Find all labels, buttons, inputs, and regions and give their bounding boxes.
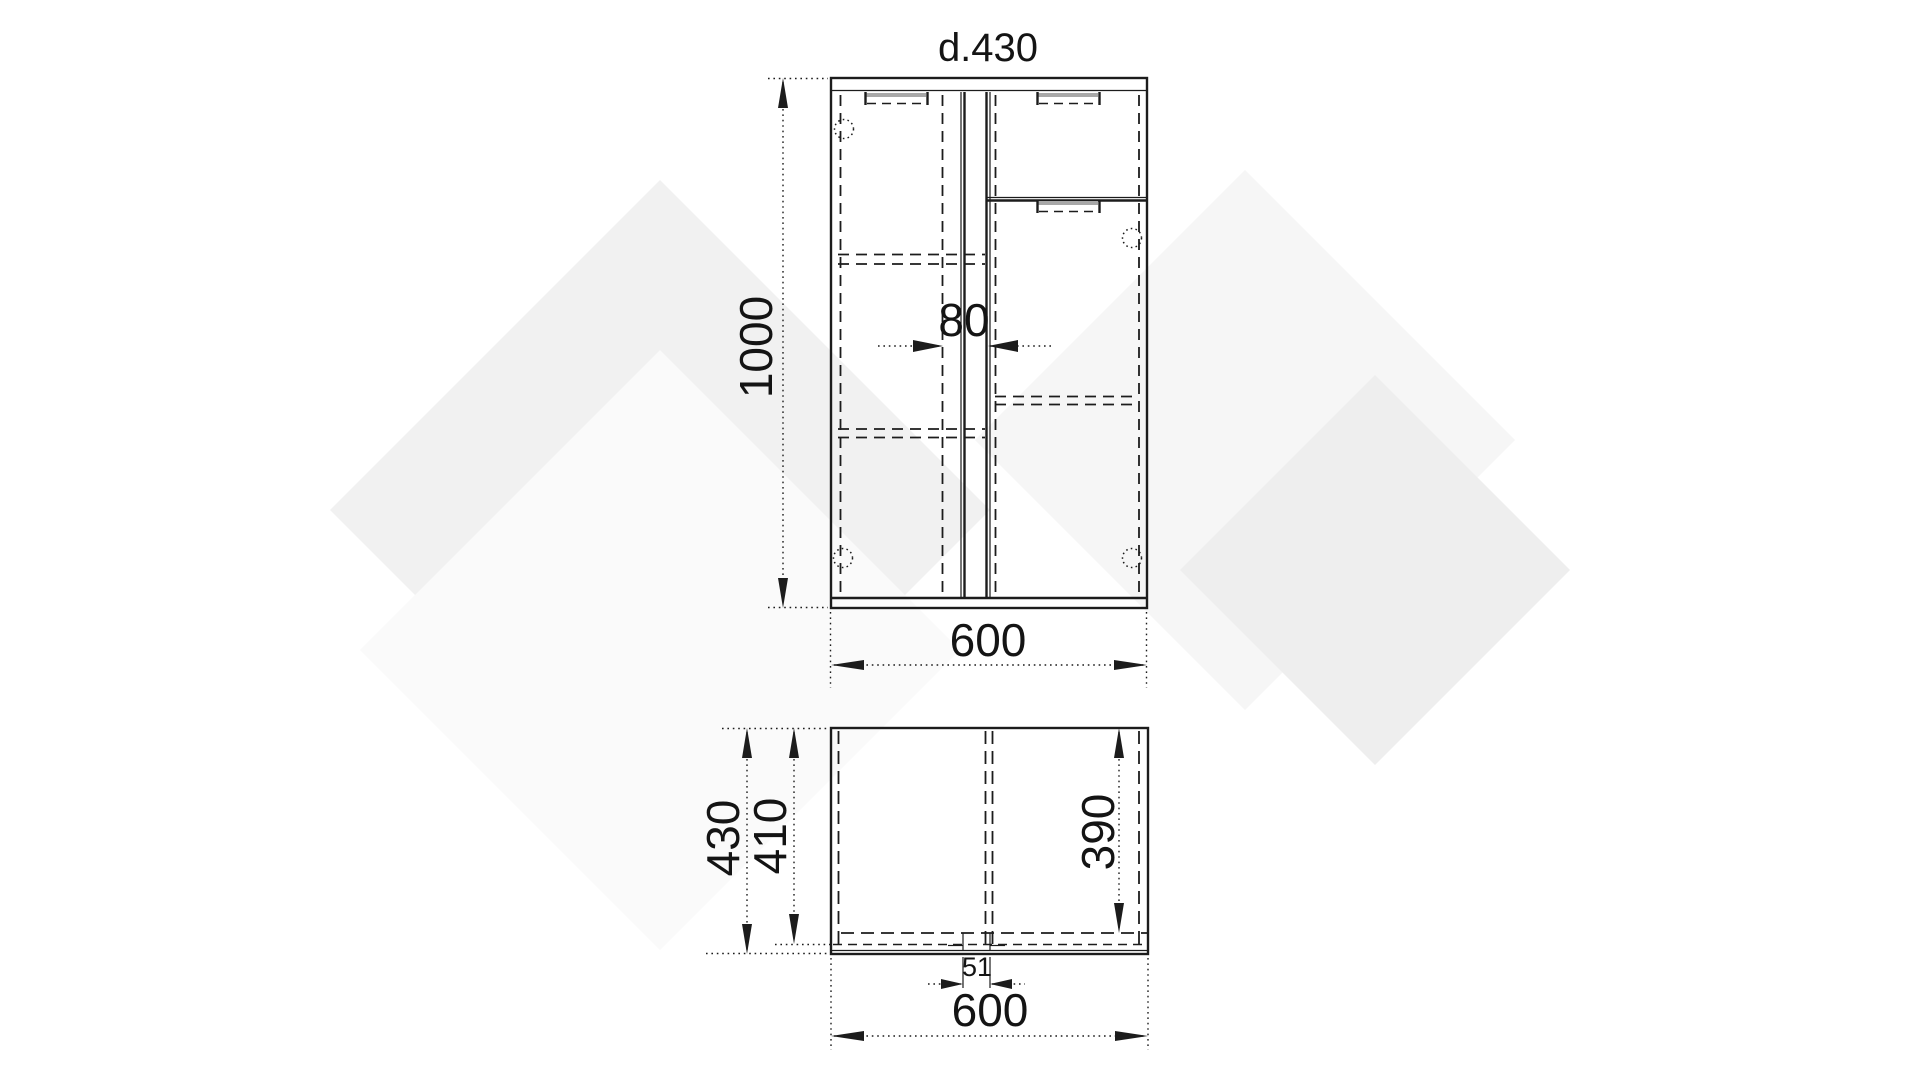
handle-groove	[866, 93, 926, 97]
dimension-label-interior-depth: 390	[1072, 794, 1124, 871]
hinge-circle	[835, 120, 854, 139]
dimension-arrow	[1114, 728, 1124, 758]
dimension-arrow	[988, 340, 1018, 352]
dimension-arrow	[1114, 660, 1147, 670]
left-door-handle	[866, 92, 928, 105]
dimension-interior-depth-390: 390	[1072, 728, 1124, 933]
dimension-arrow	[778, 78, 788, 108]
handle-groove	[1038, 201, 1098, 205]
dimension-arrow	[789, 914, 799, 944]
drawing-title: d.430	[938, 26, 1038, 70]
dimension-label-height: 1000	[730, 296, 782, 398]
drawer-handle	[1038, 92, 1100, 105]
dimension-gap-80: 80	[878, 294, 1052, 352]
dimension-label-width: 600	[952, 984, 1029, 1036]
handle-groove	[1038, 93, 1098, 97]
dimension-label-inner-depth: 410	[744, 798, 796, 875]
dimension-arrow	[1114, 903, 1124, 933]
technical-drawing-page: 1000 80 600 d.430	[0, 0, 1920, 1080]
dimension-arrow	[831, 1031, 864, 1041]
dimension-label-width: 600	[950, 614, 1027, 666]
dimension-label-groove: 51	[962, 952, 992, 982]
watermark	[330, 170, 1570, 950]
dimension-arrow	[742, 924, 752, 954]
dimension-label-gap: 80	[938, 294, 989, 346]
dimension-arrow	[1115, 1031, 1148, 1041]
drawing-canvas: 1000 80 600 d.430	[0, 0, 1920, 1080]
dimension-label-depth: 430	[697, 800, 749, 877]
lower-door-handle	[1038, 200, 1100, 213]
